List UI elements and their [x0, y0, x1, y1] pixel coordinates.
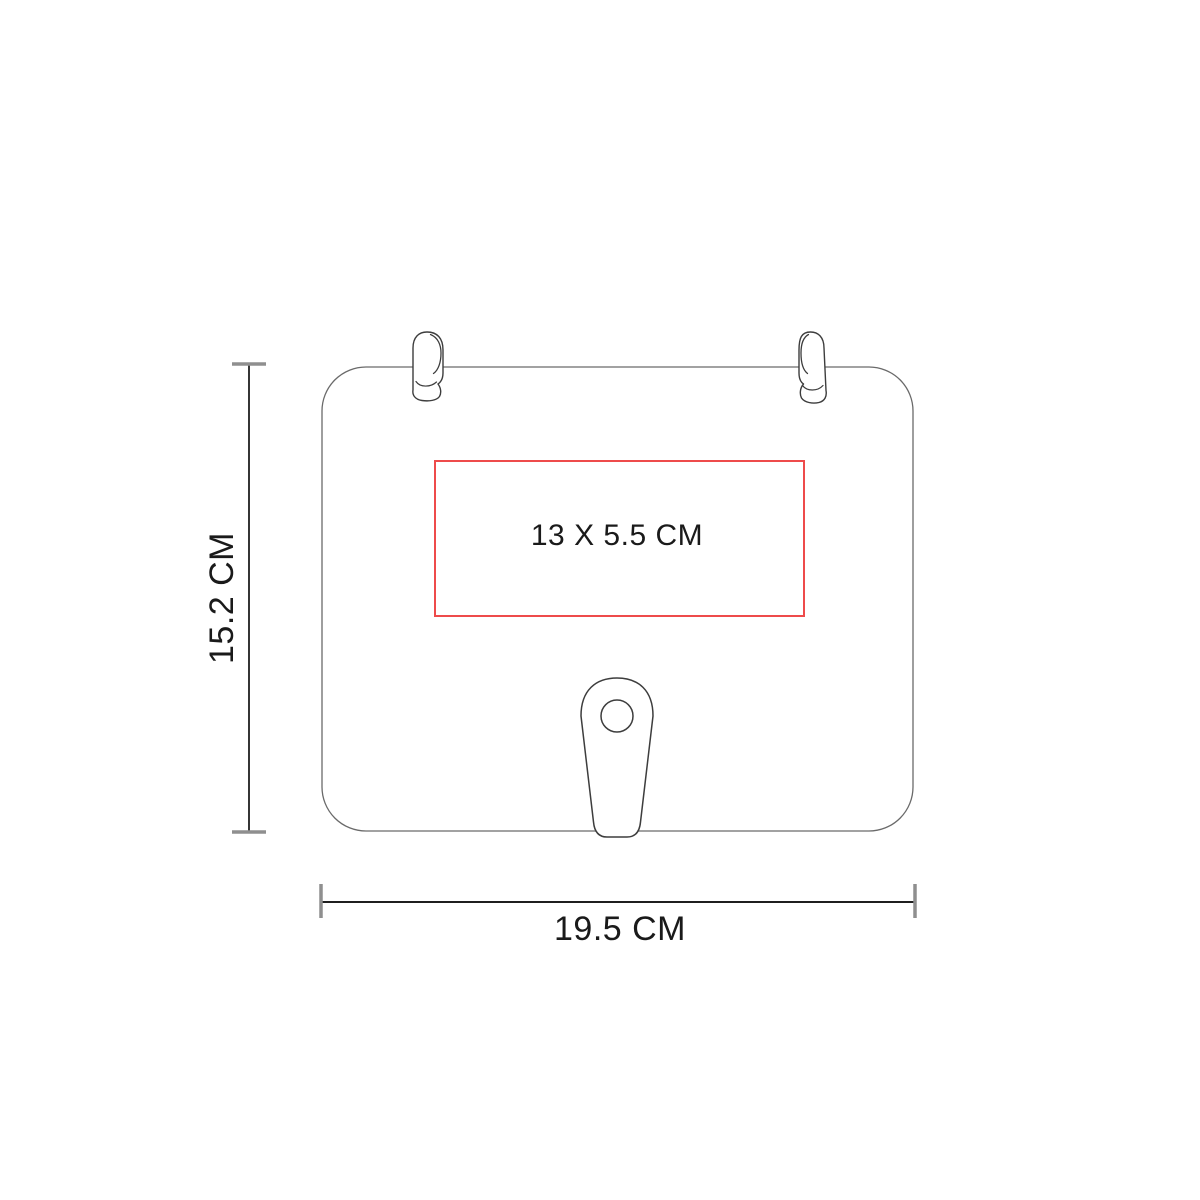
width-dimension: 19.5 CM — [321, 884, 915, 948]
notepad-outline — [322, 332, 913, 837]
height-dimension: 15.2 CM — [203, 364, 266, 832]
binder-ring-right-icon — [799, 332, 826, 403]
binder-ring-left-icon — [413, 332, 443, 401]
width-dimension-label: 19.5 CM — [554, 910, 686, 948]
print-area-label: 13 X 5.5 CM — [531, 519, 703, 552]
diagram-canvas: 13 X 5.5 CM 15.2 CM 19.5 CM — [0, 0, 1200, 1200]
height-dimension-label: 15.2 CM — [203, 532, 241, 664]
clasp-tab-icon — [581, 678, 653, 837]
product-dimension-diagram: 13 X 5.5 CM 15.2 CM 19.5 CM — [0, 0, 1200, 1200]
clasp-tab-hole — [601, 700, 633, 732]
